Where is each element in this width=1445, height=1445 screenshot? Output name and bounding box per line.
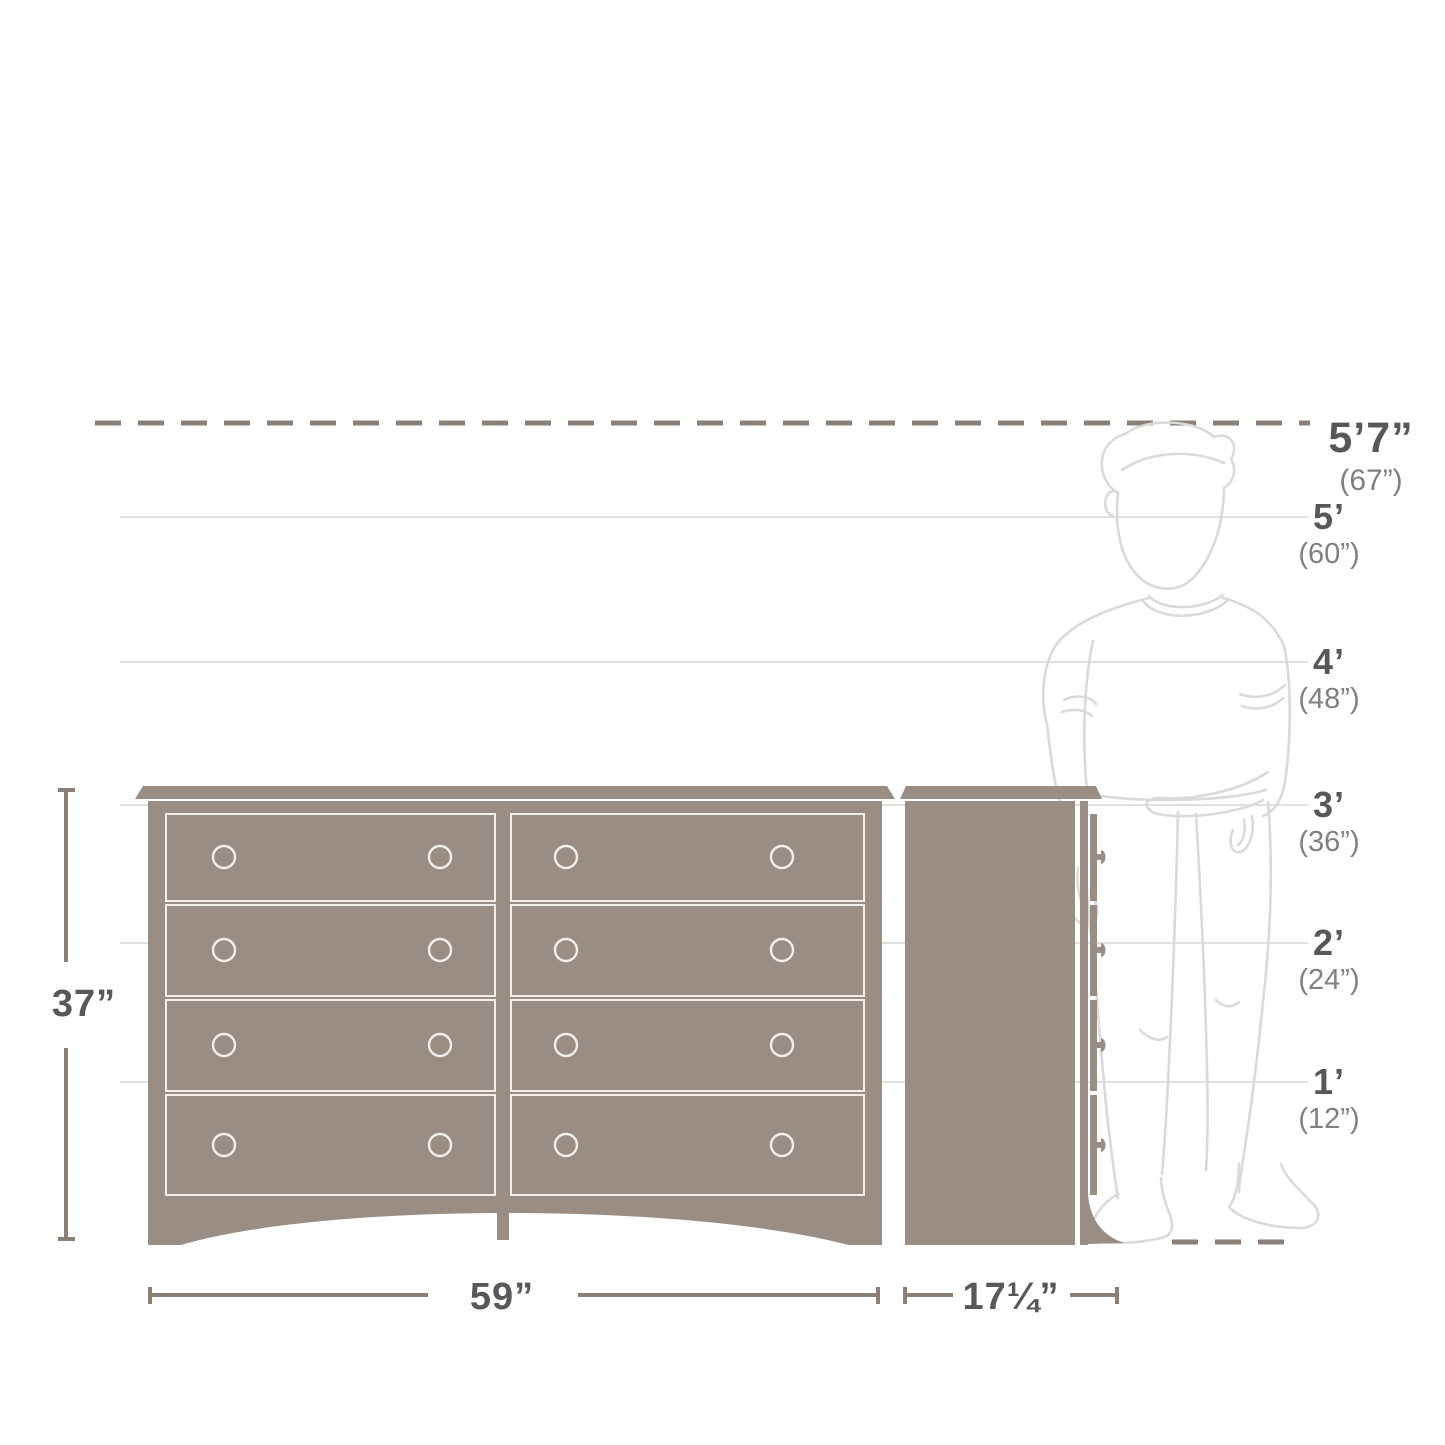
height-dimension-label: 37” (24, 983, 144, 1025)
height-marker-1ft: 1’ (12”) (1254, 1063, 1404, 1135)
knob-profile-icon (1097, 1038, 1106, 1052)
height-marker-inches: (24”) (1254, 965, 1404, 995)
drawer (511, 1000, 864, 1091)
height-marker-5ft7: 5’7” (67”) (1296, 416, 1445, 496)
knob-profile-icon (1097, 850, 1106, 864)
depth-dimension-label: 17¼” (931, 1276, 1091, 1318)
height-marker-value: 2’ (1254, 924, 1404, 962)
side-front-edge (1080, 801, 1088, 1245)
width-dimension-label: 59” (442, 1276, 562, 1318)
height-marker-inches: (67”) (1296, 465, 1445, 497)
side-drawer-edge (1090, 1095, 1097, 1195)
side-drawer-edge (1090, 1000, 1097, 1091)
side-panel (905, 801, 1075, 1245)
drawer (166, 1095, 495, 1195)
height-marker-2ft: 2’ (24”) (1254, 924, 1404, 996)
height-marker-5ft: 5’ (60”) (1254, 498, 1404, 570)
height-marker-inches: (12”) (1254, 1104, 1404, 1134)
height-marker-value: 3’ (1254, 786, 1404, 824)
dresser-front-view-icon (135, 786, 895, 1246)
height-marker-value: 5’ (1254, 498, 1404, 536)
apron-center-post (497, 1198, 509, 1240)
knob-profile-icon (1097, 1138, 1106, 1152)
drawer (166, 814, 495, 901)
drawer (511, 814, 864, 901)
drawer (511, 1095, 864, 1195)
height-marker-inches: (36”) (1254, 827, 1404, 857)
size-diagram: 5’7” (67”) 5’ (60”) 4’ (48”) 3’ (36”) 2’… (0, 0, 1445, 1445)
height-marker-value: 4’ (1254, 643, 1404, 681)
side-top-slab (900, 786, 1102, 799)
drawer (511, 905, 864, 996)
drawer (166, 1000, 495, 1091)
side-drawer-edge (1090, 814, 1097, 901)
height-marker-value: 1’ (1254, 1063, 1404, 1101)
diagram-canvas (0, 0, 1445, 1445)
drawer (166, 905, 495, 996)
height-marker-inches: (48”) (1254, 684, 1404, 714)
height-marker-value: 5’7” (1296, 416, 1445, 462)
side-drawer-edge (1090, 905, 1097, 996)
knob-profile-icon (1097, 943, 1106, 957)
height-marker-inches: (60”) (1254, 539, 1404, 569)
height-marker-3ft: 3’ (36”) (1254, 786, 1404, 858)
front-top-slab (135, 786, 895, 799)
dresser-side-view-icon (900, 786, 1124, 1245)
height-marker-4ft: 4’ (48”) (1254, 643, 1404, 715)
